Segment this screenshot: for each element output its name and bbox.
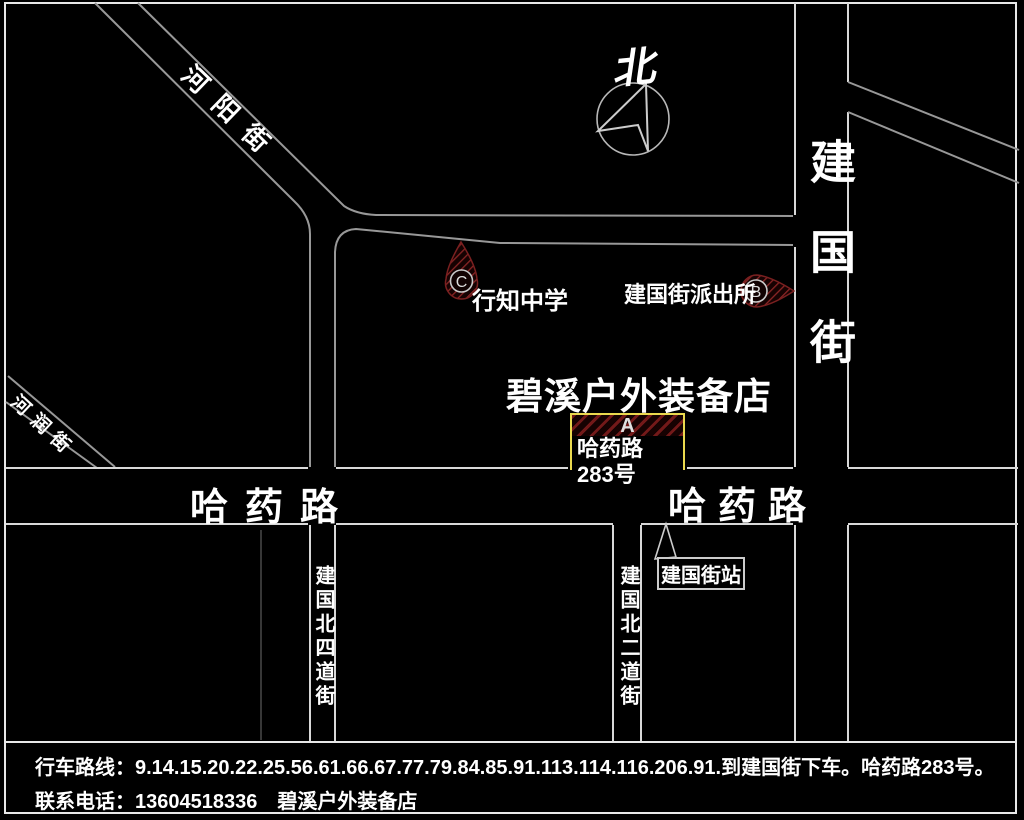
marker-a-letter: A <box>620 416 634 436</box>
jianguo-n4-street-label: 建国北四道街 <box>309 565 338 709</box>
contact-phone-line: 联系电话：13604518336 碧溪户外装备店 <box>35 785 417 814</box>
store-title: 碧溪户外装备店 <box>506 366 772 420</box>
hayao-road <box>6 468 1018 524</box>
hayao-road-label-left: 哈药路 <box>190 476 355 531</box>
map-page: { "map": { "compass_label": "北", "street… <box>0 0 1024 820</box>
police-station-label: 建国街派出所 <box>624 277 756 309</box>
station-label: 建国街站 <box>661 559 741 588</box>
school-label: 行知中学 <box>472 281 568 316</box>
bus-route-line: 行车路线：9.14.15.20.22.25.56.61.66.67.77.79.… <box>35 751 994 780</box>
jianguo-street-label: 建国街 <box>797 138 863 408</box>
marker-c-letter: C <box>456 274 468 291</box>
station-callout-box: 建国街站 <box>657 557 745 590</box>
hayao-road-label-right: 哈药路 <box>668 475 818 530</box>
jianguo-n2-street-label: 建国北二道街 <box>614 565 643 709</box>
topright-diagonal-road <box>848 82 1019 183</box>
store-address-label: 哈药路283号 <box>572 436 683 488</box>
store-location-box: A 哈药路283号 <box>570 413 685 470</box>
